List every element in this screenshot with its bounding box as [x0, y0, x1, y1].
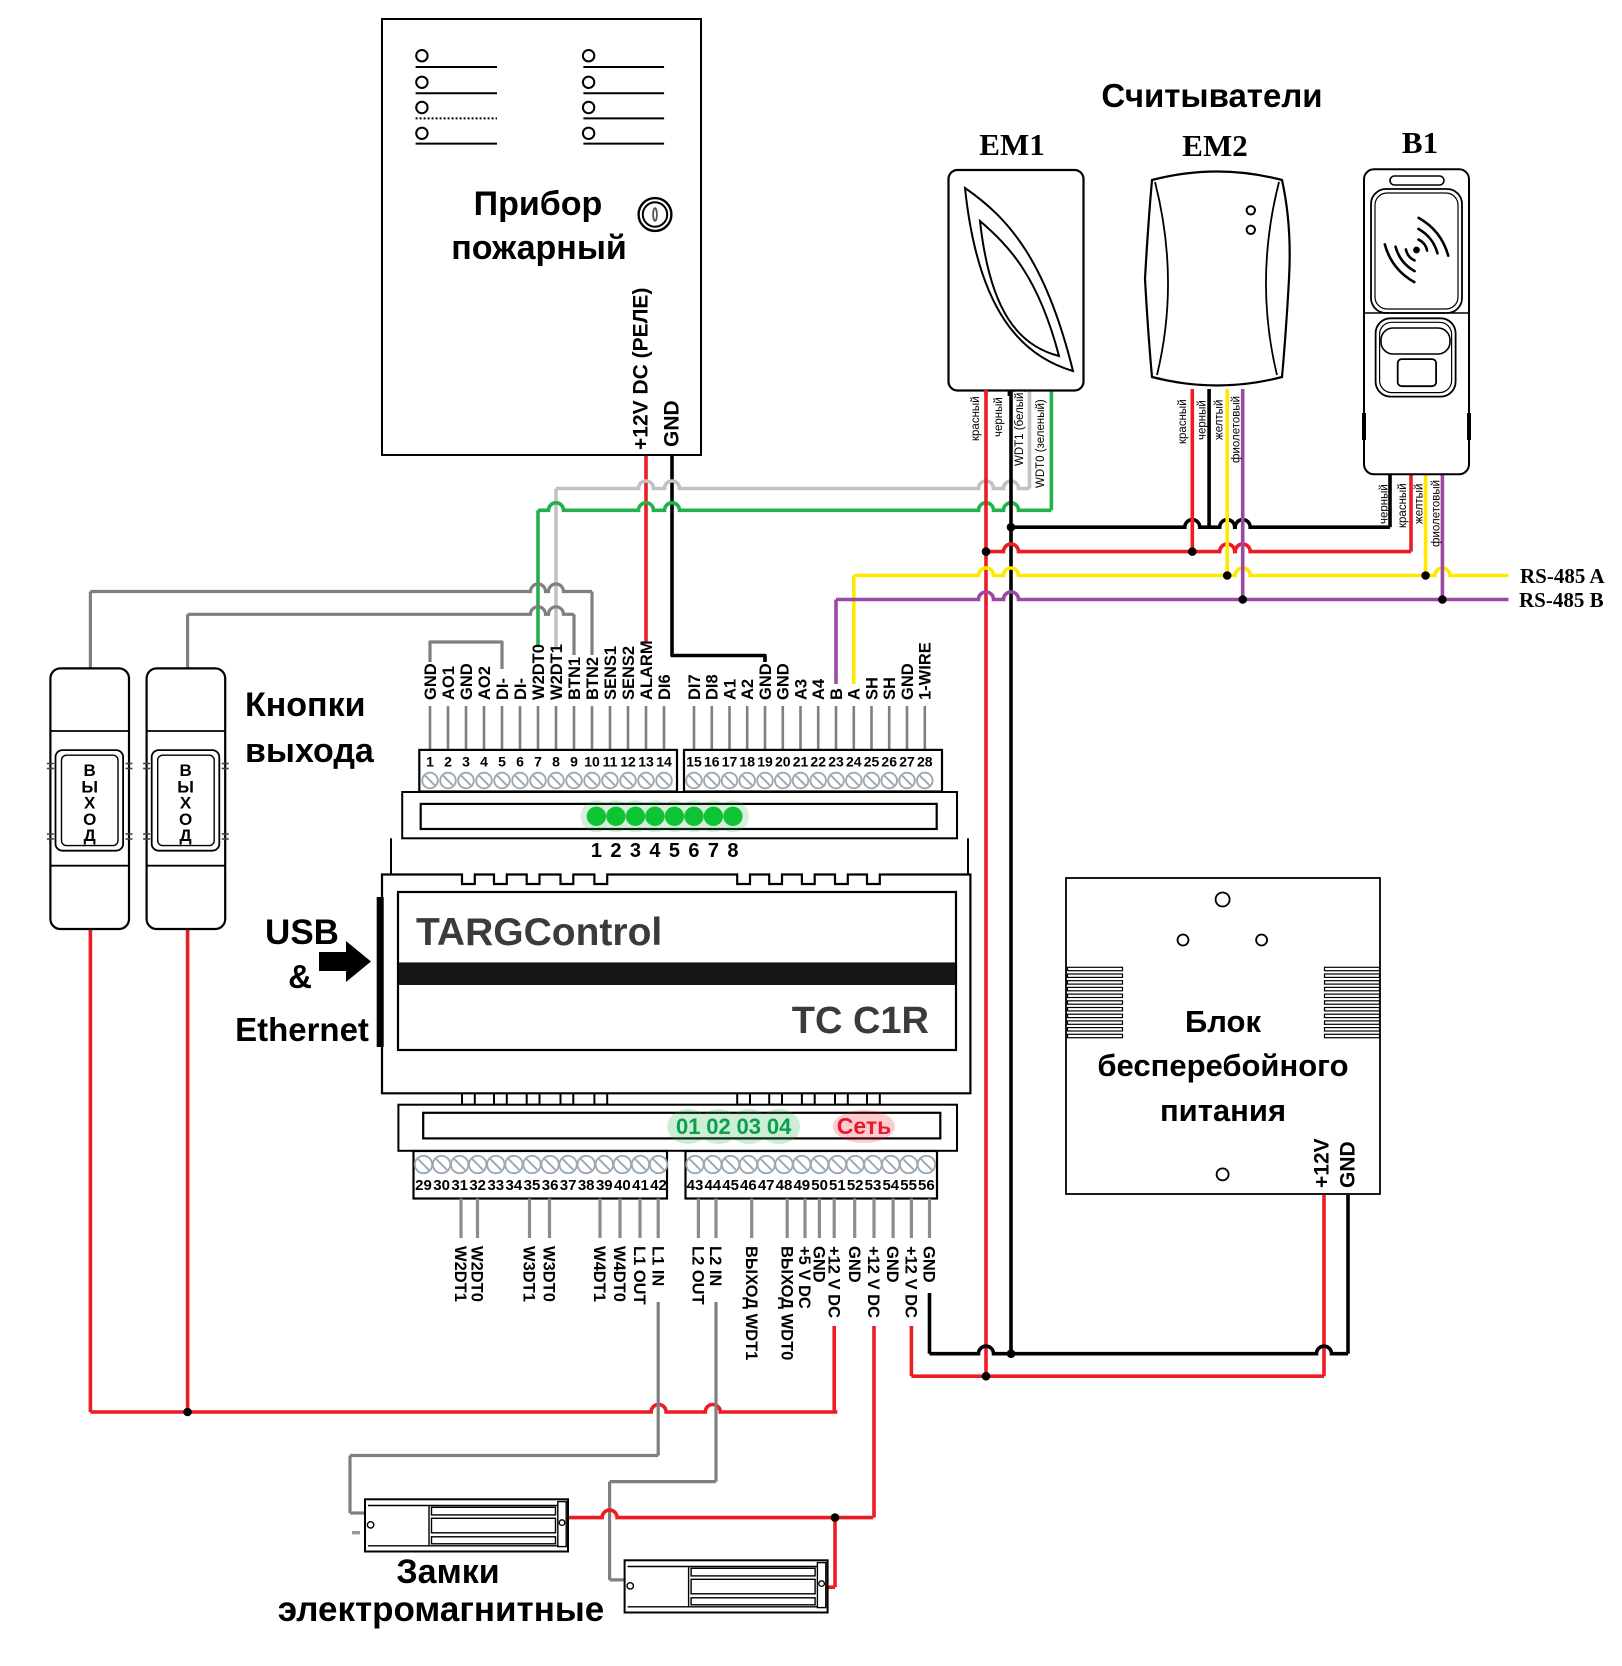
svg-text:DI8: DI8 — [704, 674, 722, 700]
svg-text:GND: GND — [661, 400, 684, 447]
svg-text:выхода: выхода — [245, 732, 375, 770]
svg-text:Считыватели: Считыватели — [1101, 77, 1322, 114]
svg-text:L2 OUT: L2 OUT — [689, 1246, 707, 1305]
svg-text:+12V: +12V — [1311, 1138, 1334, 1188]
svg-text:B: B — [828, 688, 846, 700]
svg-text:32: 32 — [469, 1177, 486, 1194]
svg-text:электромагнитные: электромагнитные — [278, 1590, 604, 1629]
svg-text:ВЫХОД WDT1: ВЫХОД WDT1 — [742, 1246, 760, 1360]
svg-text:49: 49 — [793, 1177, 810, 1194]
svg-text:+12 V DC: +12 V DC — [864, 1246, 882, 1318]
svg-text:16: 16 — [704, 754, 720, 770]
svg-text:8: 8 — [552, 754, 560, 770]
svg-text:пожарный: пожарный — [451, 229, 627, 267]
svg-text:39: 39 — [596, 1177, 613, 1194]
svg-text:43: 43 — [687, 1177, 704, 1194]
svg-text:41: 41 — [632, 1177, 649, 1194]
svg-text:+12V DC (РЕЛЕ): +12V DC (РЕЛЕ) — [630, 288, 653, 450]
svg-text:L2 IN: L2 IN — [706, 1246, 724, 1286]
svg-text:42: 42 — [650, 1177, 667, 1194]
svg-text:24: 24 — [846, 754, 862, 770]
svg-text:15: 15 — [686, 754, 702, 770]
svg-text:37: 37 — [560, 1177, 577, 1194]
svg-text:SENS2: SENS2 — [620, 646, 638, 700]
svg-text:&: & — [288, 958, 312, 995]
svg-text:DI-: DI- — [494, 678, 512, 700]
svg-text:+12 V DC: +12 V DC — [824, 1246, 842, 1318]
svg-text:AO1: AO1 — [440, 666, 458, 700]
svg-text:9: 9 — [570, 754, 578, 770]
svg-text:Ethernet: Ethernet — [235, 1011, 369, 1048]
svg-text:01: 01 — [676, 1114, 700, 1139]
svg-text:EM2: EM2 — [1182, 128, 1247, 163]
svg-text:черный: черный — [1379, 484, 1391, 524]
svg-text:34: 34 — [506, 1177, 523, 1194]
svg-text:L1 OUT: L1 OUT — [630, 1246, 648, 1305]
svg-text:22: 22 — [810, 754, 826, 770]
svg-text:35: 35 — [524, 1177, 541, 1194]
svg-text:BTN1: BTN1 — [566, 657, 584, 700]
svg-text:7: 7 — [534, 754, 542, 770]
svg-text:фиолетовый: фиолетовый — [1231, 396, 1243, 463]
svg-text:20: 20 — [775, 754, 791, 770]
svg-text:WDT0 (зеленый): WDT0 (зеленый) — [1035, 399, 1047, 488]
svg-text:Кнопки: Кнопки — [245, 686, 366, 724]
svg-text:черный: черный — [993, 397, 1005, 437]
svg-text:GND: GND — [899, 663, 917, 700]
svg-text:питания: питания — [1160, 1093, 1286, 1128]
svg-text:A: A — [846, 688, 864, 700]
svg-text:1-WIRE: 1-WIRE — [917, 642, 935, 700]
svg-text:DI6: DI6 — [656, 674, 674, 700]
svg-text:55: 55 — [900, 1177, 917, 1194]
svg-text:26: 26 — [881, 754, 897, 770]
svg-text:WDT1 (белый): WDT1 (белый) — [1014, 389, 1026, 466]
svg-text:28: 28 — [917, 754, 933, 770]
svg-text:48: 48 — [776, 1177, 793, 1194]
svg-text:2: 2 — [610, 840, 621, 862]
svg-text:GND: GND — [883, 1246, 901, 1283]
svg-text:40: 40 — [614, 1177, 631, 1194]
svg-text:бесперебойного: бесперебойного — [1097, 1048, 1348, 1083]
svg-text:SH: SH — [881, 677, 899, 700]
svg-text:SH: SH — [863, 677, 881, 700]
svg-text:фиолетовый: фиолетовый — [1431, 480, 1443, 547]
svg-text:SENS1: SENS1 — [602, 646, 620, 700]
svg-text:02: 02 — [706, 1114, 730, 1139]
svg-text:4: 4 — [649, 840, 661, 862]
svg-text:черный: черный — [1197, 400, 1209, 440]
svg-text:RS-485 B: RS-485 B — [1519, 588, 1604, 612]
svg-text:A4: A4 — [810, 678, 828, 700]
svg-text:красный: красный — [1397, 483, 1409, 528]
svg-text:11: 11 — [603, 754, 618, 770]
svg-text:17: 17 — [722, 754, 738, 770]
svg-text:50: 50 — [811, 1177, 828, 1194]
svg-text:W3DT0: W3DT0 — [540, 1246, 558, 1302]
svg-text:51: 51 — [829, 1177, 846, 1194]
svg-text:5: 5 — [498, 754, 506, 770]
svg-text:53: 53 — [865, 1177, 882, 1194]
svg-text:03: 03 — [737, 1114, 761, 1139]
svg-text:AO2: AO2 — [476, 666, 494, 700]
svg-text:GND: GND — [757, 663, 775, 700]
svg-text:8: 8 — [727, 840, 738, 862]
svg-text:TARGControl: TARGControl — [416, 911, 662, 954]
svg-text:36: 36 — [542, 1177, 559, 1194]
svg-text:6: 6 — [688, 840, 699, 862]
svg-text:A2: A2 — [739, 679, 757, 700]
svg-text:ВЫХОД WDT0: ВЫХОД WDT0 — [777, 1246, 795, 1360]
svg-text:12: 12 — [620, 754, 636, 770]
svg-text:W4DT0: W4DT0 — [610, 1246, 628, 1302]
svg-text:TC C1R: TC C1R — [792, 1000, 929, 1042]
svg-text:GND: GND — [1337, 1141, 1360, 1188]
svg-text:W2DT1: W2DT1 — [451, 1246, 469, 1302]
svg-text:3: 3 — [630, 840, 641, 862]
svg-text:BTN2: BTN2 — [584, 657, 602, 700]
svg-text:+12 V DC: +12 V DC — [902, 1246, 920, 1318]
svg-text:31: 31 — [451, 1177, 468, 1194]
svg-text:Замки: Замки — [396, 1553, 499, 1591]
svg-text:GND: GND — [422, 663, 440, 700]
svg-text:Прибор: Прибор — [474, 185, 603, 223]
svg-text:47: 47 — [758, 1177, 775, 1194]
svg-text:желтый: желтый — [1214, 400, 1226, 440]
svg-text:Сеть: Сеть — [837, 1113, 892, 1139]
svg-text:56: 56 — [918, 1177, 935, 1194]
svg-text:25: 25 — [864, 754, 880, 770]
svg-text:RS-485 A: RS-485 A — [1520, 564, 1605, 588]
svg-text:DI7: DI7 — [686, 674, 704, 700]
svg-text:33: 33 — [487, 1177, 504, 1194]
svg-text:GND: GND — [458, 663, 476, 700]
svg-text:ALARM: ALARM — [638, 640, 656, 700]
svg-text:DI-: DI- — [512, 678, 530, 700]
svg-text:1: 1 — [426, 754, 434, 770]
svg-text:3: 3 — [462, 754, 470, 770]
svg-text:W2DT1: W2DT1 — [548, 644, 566, 700]
svg-text:W3DT1: W3DT1 — [520, 1246, 538, 1302]
svg-text:желтый: желтый — [1414, 484, 1426, 524]
svg-text:5: 5 — [669, 840, 680, 862]
svg-text:1: 1 — [591, 840, 602, 862]
svg-text:EM1: EM1 — [979, 127, 1044, 162]
svg-text:38: 38 — [578, 1177, 595, 1194]
svg-text:54: 54 — [882, 1177, 899, 1194]
svg-text:L1 IN: L1 IN — [648, 1246, 666, 1286]
svg-text:19: 19 — [757, 754, 773, 770]
svg-text:A1: A1 — [721, 679, 739, 700]
svg-text:4: 4 — [480, 754, 488, 770]
svg-text:04: 04 — [767, 1114, 792, 1139]
svg-text:красный: красный — [1177, 399, 1189, 444]
svg-text:44: 44 — [704, 1177, 721, 1194]
svg-text:W4DT1: W4DT1 — [590, 1246, 608, 1302]
svg-text:W2DT0: W2DT0 — [468, 1246, 486, 1302]
svg-text:B1: B1 — [1402, 125, 1438, 160]
svg-text:6: 6 — [516, 754, 524, 770]
svg-text:14: 14 — [656, 754, 672, 770]
svg-text:GND: GND — [775, 663, 793, 700]
svg-text:13: 13 — [638, 754, 654, 770]
svg-text:GND: GND — [920, 1246, 938, 1283]
svg-text:18: 18 — [739, 754, 755, 770]
svg-text:29: 29 — [415, 1177, 432, 1194]
svg-text:7: 7 — [708, 840, 719, 862]
svg-text:46: 46 — [740, 1177, 757, 1194]
svg-text:красный: красный — [970, 396, 982, 441]
svg-text:W2DT0: W2DT0 — [530, 644, 548, 700]
svg-text:USB: USB — [265, 913, 339, 952]
svg-text:23: 23 — [828, 754, 844, 770]
svg-text:A3: A3 — [792, 679, 810, 700]
svg-text:10: 10 — [584, 754, 600, 770]
svg-text:21: 21 — [793, 754, 809, 770]
svg-text:Блок: Блок — [1185, 1004, 1262, 1039]
svg-text:27: 27 — [899, 754, 915, 770]
svg-text:GND: GND — [845, 1246, 863, 1283]
svg-text:2: 2 — [444, 754, 452, 770]
svg-text:52: 52 — [847, 1177, 864, 1194]
svg-text:30: 30 — [433, 1177, 450, 1194]
svg-text:45: 45 — [722, 1177, 739, 1194]
